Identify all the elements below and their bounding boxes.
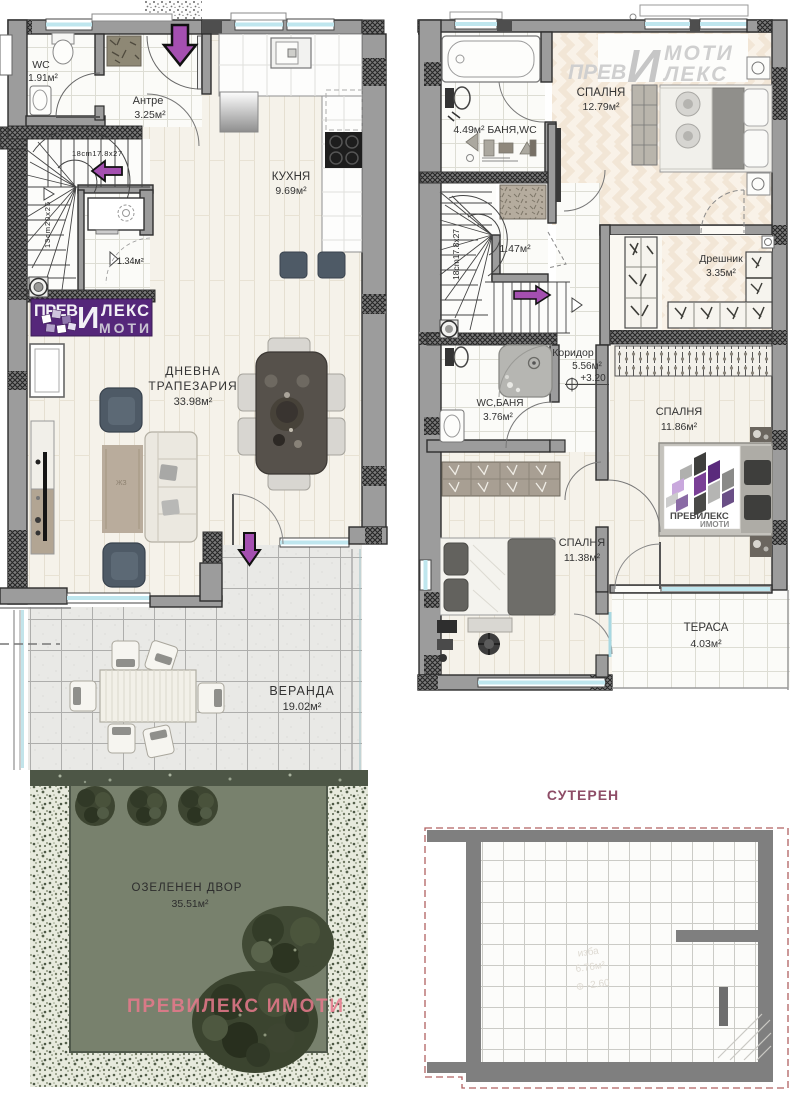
svg-text:И: И: [77, 300, 99, 335]
svg-text:WC,БАНЯ: WC,БАНЯ: [477, 398, 524, 409]
svg-text:13cm20x25: 13cm20x25: [43, 202, 52, 248]
svg-text:19.02м²: 19.02м²: [283, 701, 322, 713]
svg-text:СПАЛНЯ: СПАЛНЯ: [577, 87, 626, 99]
svg-text:WC: WC: [32, 59, 50, 71]
svg-text:ЖЗ: ЖЗ: [116, 480, 127, 487]
svg-text:Антре: Антре: [133, 95, 164, 107]
svg-text:ОЗЕЛЕНЕН ДВОР: ОЗЕЛЕНЕН ДВОР: [132, 882, 243, 894]
svg-text:35.51м²: 35.51м²: [172, 898, 209, 910]
svg-text:ЛЕКС: ЛЕКС: [662, 63, 728, 86]
svg-text:18cm17.8x27: 18cm17.8x27: [451, 229, 461, 280]
svg-text:КУХНЯ: КУХНЯ: [272, 171, 310, 183]
svg-text:1.34м²: 1.34м²: [117, 256, 144, 266]
svg-text:4.49м² БАНЯ,WC: 4.49м² БАНЯ,WC: [453, 124, 537, 136]
svg-text:И: И: [627, 40, 661, 92]
svg-text:11.38м²: 11.38м²: [564, 552, 601, 564]
svg-text:ТЕРАСА: ТЕРАСА: [684, 622, 729, 634]
svg-text:ПРЕВИЛЕКС ИМОТИ: ПРЕВИЛЕКС ИМОТИ: [127, 996, 345, 1017]
svg-text:Коридор: Коридор: [552, 347, 594, 359]
svg-text:3.25м²: 3.25м²: [134, 109, 166, 121]
svg-text:ВЕРАНДА: ВЕРАНДА: [269, 684, 334, 698]
svg-text:МОТИ: МОТИ: [99, 320, 149, 336]
svg-text:11.86м²: 11.86м²: [661, 421, 698, 433]
svg-text:СУТЕРЕН: СУТЕРЕН: [547, 787, 619, 803]
svg-text:5.56м²: 5.56м²: [572, 361, 602, 372]
svg-text:ТРАПЕЗАРИЯ: ТРАПЕЗАРИЯ: [148, 379, 237, 393]
svg-text:33.98м²: 33.98м²: [174, 396, 213, 408]
svg-text:ПРЕВ: ПРЕВ: [568, 61, 626, 84]
svg-text:18cm17.8x27: 18cm17.8x27: [72, 149, 122, 158]
svg-text:ЛЕКС: ЛЕКС: [101, 302, 149, 320]
svg-text:3.76м²: 3.76м²: [483, 412, 513, 423]
svg-text:МОТИ: МОТИ: [664, 42, 734, 65]
svg-text:+3.20: +3.20: [580, 373, 606, 384]
svg-text:12.79м²: 12.79м²: [583, 101, 620, 113]
svg-text:1.47м²: 1.47м²: [499, 243, 531, 255]
svg-text:9.69м²: 9.69м²: [275, 185, 307, 197]
svg-text:Дрешник: Дрешник: [699, 253, 743, 265]
svg-text:СПАЛНЯ: СПАЛНЯ: [656, 406, 703, 418]
svg-text:1.91м²: 1.91м²: [28, 73, 58, 84]
svg-text:СПАЛНЯ: СПАЛНЯ: [559, 537, 606, 549]
svg-text:ДНЕВНА: ДНЕВНА: [165, 364, 220, 378]
svg-text:ИМОТИ: ИМОТИ: [700, 520, 730, 529]
svg-text:4.03м²: 4.03м²: [690, 638, 722, 650]
svg-text:3.35м²: 3.35м²: [706, 268, 736, 279]
